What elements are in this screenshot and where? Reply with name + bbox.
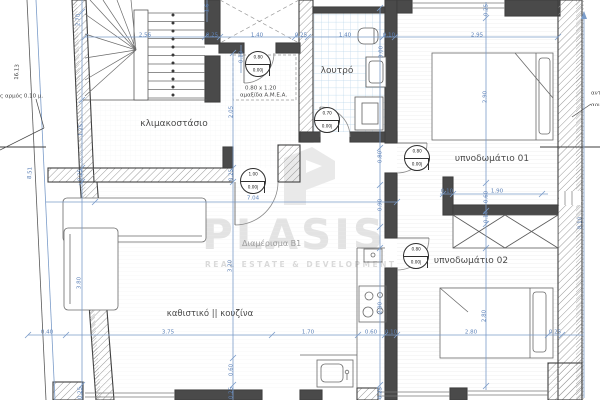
dimension-label: 1.6 [204,4,210,13]
dimension-label: 3.75 [162,329,174,335]
dimension-label: 2.05 [228,106,234,118]
dimension-label: 0.25 [77,169,83,181]
dimension-label: 2.56 [139,32,151,38]
dimension-label: 0.25 [377,387,383,399]
dimension-label: 2.80 [465,329,477,335]
dimension-label: 1.40 [251,32,263,38]
dimension-label: 0.10 [238,51,244,63]
dimension-label: 0.80 [377,151,383,163]
dimension-label: 0.25 [295,32,307,38]
dimension-label: 8.51 [27,167,34,180]
dimension-label: 1.25 [78,124,84,136]
dimension-label: 1.90 [491,188,503,194]
dimension-label: 2.70 [75,14,81,26]
floor-plan: PLASIS REAL ESTATE & DEVELOPMENT [0,0,600,400]
dimension-label: 0.25 [549,329,561,335]
dimension-label: 2.95 [471,32,483,38]
joint-leader-left [0,99,44,150]
door-tag-entrance: 1.000.002.20 [240,168,266,194]
toilet [358,28,378,44]
dimension-label: 0.25 [228,169,234,181]
dimension-label: 0.90 [377,199,383,211]
sofa-vertical [64,228,118,310]
elevator-bathroom-wall [299,0,313,142]
boundary-line [27,0,46,400]
dimension-label: 3.20 [227,260,233,272]
pillow-02 [533,292,546,352]
pillow-01 [539,58,550,134]
dimension-label: 0.25 [77,387,83,399]
landing-wall [48,168,233,182]
dimension-label: 0.60 [228,364,234,376]
dimension-label: 0.25 [483,4,489,16]
closet [453,215,558,248]
dimension-label: 7.04 [247,195,259,201]
dimension-label: 0.10 [383,32,395,38]
dimension-label: 0.25 [206,32,218,38]
staircase [83,0,207,100]
dimension-label: 2.90 [377,302,383,314]
dimension-label: 0.10 [441,188,453,194]
dimension-label: 2.80 [481,310,487,322]
central-wall [385,0,397,143]
door-tag-bedroom-02: 0.800.002.20 [403,243,429,269]
dimension-label: 0.60 [365,329,377,335]
dimension-label: 0.25 [228,387,234,399]
dimension-label: 3.00 [378,46,384,58]
plan-drawing [0,0,600,400]
door-tag-bedroom-01: 0.800.002.20 [404,145,430,171]
door-tag-elevator-lobby: 0.800.002.20 [245,51,271,77]
dimension-label: 8.10 [577,217,583,229]
dimension-label: 2.90 [482,91,488,103]
dimension-label: 3.80 [76,277,82,289]
dimension-label: 16.13 [14,64,21,80]
entrance-side-wall [278,145,300,182]
door-tag-bathroom: 0.700.002.20 [314,107,340,133]
bed-01 [432,53,553,140]
dimension-label: 1.40 [339,32,351,38]
stair-step-dots [172,14,175,97]
dimension-label: 0.40 [41,329,53,335]
dimension-label: 0.10 [483,211,489,223]
dimension-label: 1.70 [302,329,314,335]
dimension-label: 0.10 [385,329,397,335]
bathroom-top-wall [313,7,385,13]
dimension-label: 0.60 [483,191,489,203]
